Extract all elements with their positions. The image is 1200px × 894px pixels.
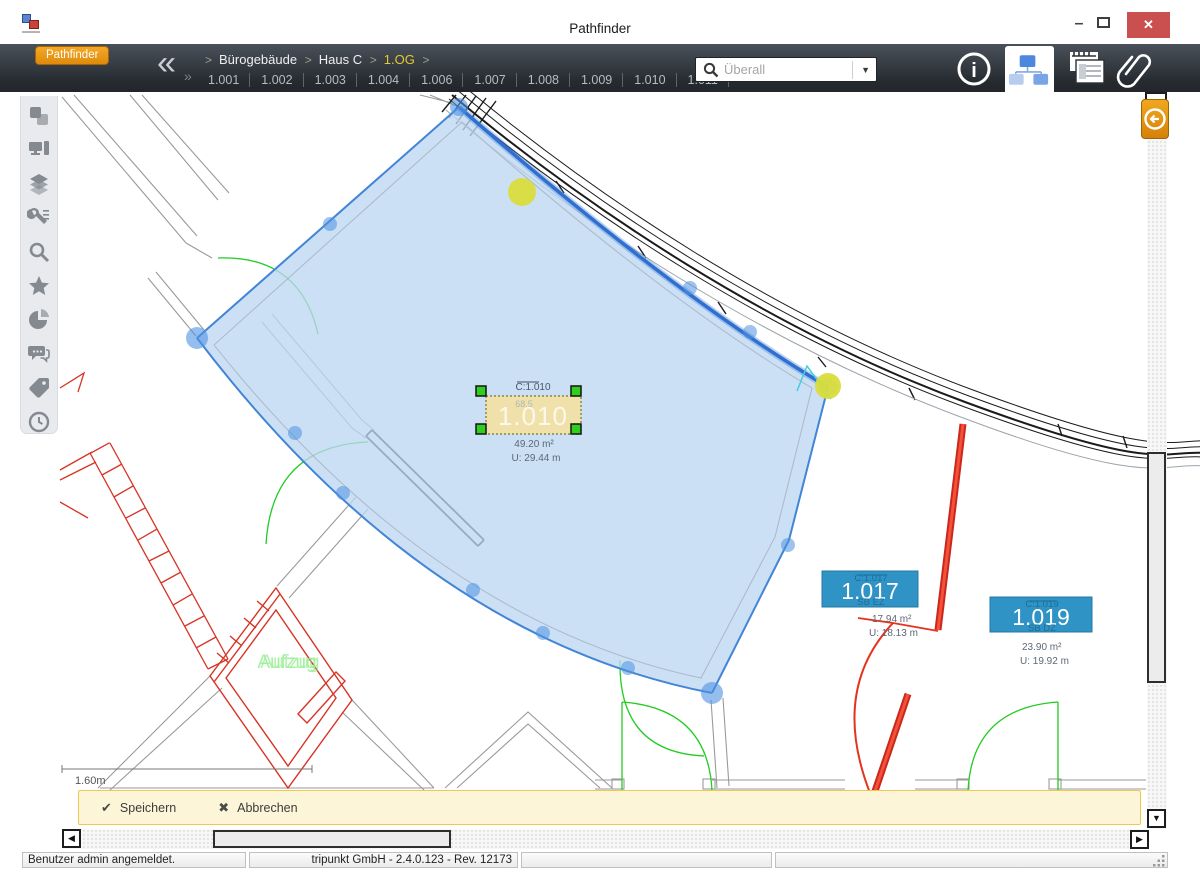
pie-chart-icon: [27, 308, 51, 332]
window-title: Pathfinder: [0, 21, 1200, 36]
save-button[interactable]: ✔ Speichern: [101, 800, 176, 816]
tool-search[interactable]: [26, 240, 52, 264]
wrench-settings-icon: [27, 206, 51, 230]
breadcrumb-house[interactable]: Haus C: [305, 52, 362, 67]
room-1010-area: 49.20 m²: [514, 439, 554, 450]
clock-icon: [27, 410, 51, 434]
status-version: tripunkt GmbH - 2.4.0.123 - Rev. 12173: [249, 852, 518, 868]
paperclip-icon: [1118, 55, 1150, 86]
room-tab-1008[interactable]: 1.008: [516, 73, 559, 87]
info-icon: i: [971, 60, 977, 82]
search-input[interactable]: [724, 60, 844, 79]
breadcrumb-building[interactable]: Bürogebäude: [205, 52, 297, 67]
tool-comments[interactable]: [26, 342, 52, 366]
info-button[interactable]: i: [950, 44, 998, 92]
floorplan-canvas[interactable]: 1.60m Aufzug Aufzug C:1.010 68.5 1.010 4…: [0, 92, 1200, 854]
attachments-button[interactable]: [1110, 44, 1158, 92]
room-1010-perimeter: U: 29.44 m: [512, 453, 561, 464]
tool-layers[interactable]: [26, 172, 52, 196]
star-icon: [27, 274, 51, 298]
room-tab-1006[interactable]: 1.006: [409, 73, 452, 87]
elevator-shaft: [210, 588, 352, 788]
expand-rooms-icon[interactable]: »: [184, 68, 192, 84]
resize-grip[interactable]: [1152, 855, 1166, 867]
workstation-icon: [27, 138, 51, 162]
main-toolbar: Pathfinder « » Bürogebäude Haus C 1.OG 1…: [0, 44, 1200, 92]
maximize-button[interactable]: [1097, 17, 1110, 28]
tool-favorites[interactable]: [26, 274, 52, 298]
room-1017-perimeter: U: 18.13 m: [869, 628, 918, 639]
status-cell-empty-1: [521, 852, 772, 868]
tool-settings[interactable]: [26, 206, 52, 230]
tool-history[interactable]: [26, 410, 52, 434]
room-tab-strip: 1.0011.0021.0031.0041.0061.0071.0081.009…: [203, 73, 757, 87]
structure-icon: [27, 104, 51, 128]
room-1017-area: 17.94 m²: [872, 614, 912, 625]
edit-action-bar: ✔ Speichern ✖ Abbrechen: [78, 790, 1141, 825]
status-cell-empty-2: [775, 852, 1168, 868]
reports-icon: [1070, 52, 1104, 83]
horizontal-scrollbar-right-button[interactable]: ▶: [1130, 830, 1149, 849]
cancel-label: Abbrechen: [237, 801, 297, 815]
diagram-view-icon: [1005, 46, 1053, 94]
tool-structure[interactable]: [26, 104, 52, 128]
back-arrow-icon: [1143, 107, 1167, 131]
collapse-breadcrumb-icon[interactable]: «: [157, 44, 173, 83]
room-1017-subtype: SB EZ: [857, 597, 885, 608]
elevator-label: Aufzug: [257, 652, 316, 673]
room-1010-code: C:1.010: [515, 382, 550, 393]
room-1019-area: 23.90 m²: [1022, 642, 1062, 653]
vertical-scrollbar-down-button[interactable]: ▼: [1147, 809, 1166, 828]
room-tab-1007[interactable]: 1.007: [462, 73, 505, 87]
search-dropdown-icon[interactable]: ▼: [861, 65, 870, 75]
vertical-scrollbar-thumb[interactable]: [1147, 452, 1166, 683]
room-tab-1002[interactable]: 1.002: [249, 73, 292, 87]
scale-bracket: [62, 765, 312, 773]
breadcrumb-floor[interactable]: 1.OG: [370, 52, 415, 67]
snap-point-yellow-2[interactable]: [815, 373, 841, 399]
left-tool-strip: [20, 96, 58, 434]
status-bar: Benutzer admin angemeldet. tripunkt GmbH…: [0, 852, 1200, 869]
room-tab-1010[interactable]: 1.010: [622, 73, 665, 87]
scale-label: 1.60m: [75, 775, 106, 787]
pathfinder-window: Pathfinder – ✕ Pathfinder « » Bürogebäud…: [0, 0, 1200, 894]
close-button[interactable]: ✕: [1127, 12, 1170, 38]
title-bar: Pathfinder – ✕: [0, 0, 1200, 44]
tool-workstation[interactable]: [26, 138, 52, 162]
room-tab-1009[interactable]: 1.009: [569, 73, 612, 87]
room-tab-1001[interactable]: 1.001: [208, 73, 239, 87]
magnifier-icon: [27, 240, 51, 264]
chat-icon: [27, 342, 51, 366]
tool-statistics[interactable]: [26, 308, 52, 332]
red-doors: [854, 424, 963, 800]
breadcrumb: Bürogebäude Haus C 1.OG: [205, 52, 440, 67]
room-tab-1003[interactable]: 1.003: [303, 73, 346, 87]
cancel-button[interactable]: ✖ Abbrechen: [218, 800, 297, 816]
search-divider: [852, 61, 853, 79]
room-tab-1004[interactable]: 1.004: [356, 73, 399, 87]
breadcrumb-trailing-separator: [422, 52, 436, 67]
snap-point-yellow-1[interactable]: [508, 178, 536, 206]
room-1019-perimeter: U: 19.92 m: [1020, 656, 1069, 667]
minimize-button[interactable]: –: [1066, 14, 1092, 38]
red-stair-flight: [60, 373, 228, 669]
tool-tags[interactable]: [26, 376, 52, 400]
save-label: Speichern: [120, 801, 176, 815]
status-user: Benutzer admin angemeldet.: [22, 852, 246, 868]
room-1019-subtype: SB DZ: [1028, 623, 1056, 634]
room-1019-label[interactable]: C:1.019 1.019 SB DZ 23.90 m² U: 19.92 m: [990, 597, 1092, 667]
room-1010-number: 1.010: [498, 401, 568, 431]
horizontal-scrollbar-thumb[interactable]: [213, 830, 451, 848]
cross-icon: ✖: [218, 800, 229, 816]
pathfinder-badge[interactable]: Pathfinder: [35, 46, 109, 65]
floorplan-drawing: 1.60m Aufzug Aufzug C:1.010 68.5 1.010 4…: [0, 92, 1200, 854]
search-box: ▼: [695, 57, 877, 82]
room-1017-label[interactable]: C:1.017 1.017 SB EZ 17.94 m² U: 18.13 m: [822, 571, 918, 639]
back-button[interactable]: [1141, 99, 1169, 139]
reports-button[interactable]: [1062, 44, 1110, 92]
check-icon: ✔: [101, 800, 112, 816]
layers-icon: [27, 172, 51, 196]
horizontal-scrollbar-left-button[interactable]: ◀: [62, 829, 81, 848]
search-icon: [703, 62, 719, 78]
tag-icon: [27, 376, 51, 400]
